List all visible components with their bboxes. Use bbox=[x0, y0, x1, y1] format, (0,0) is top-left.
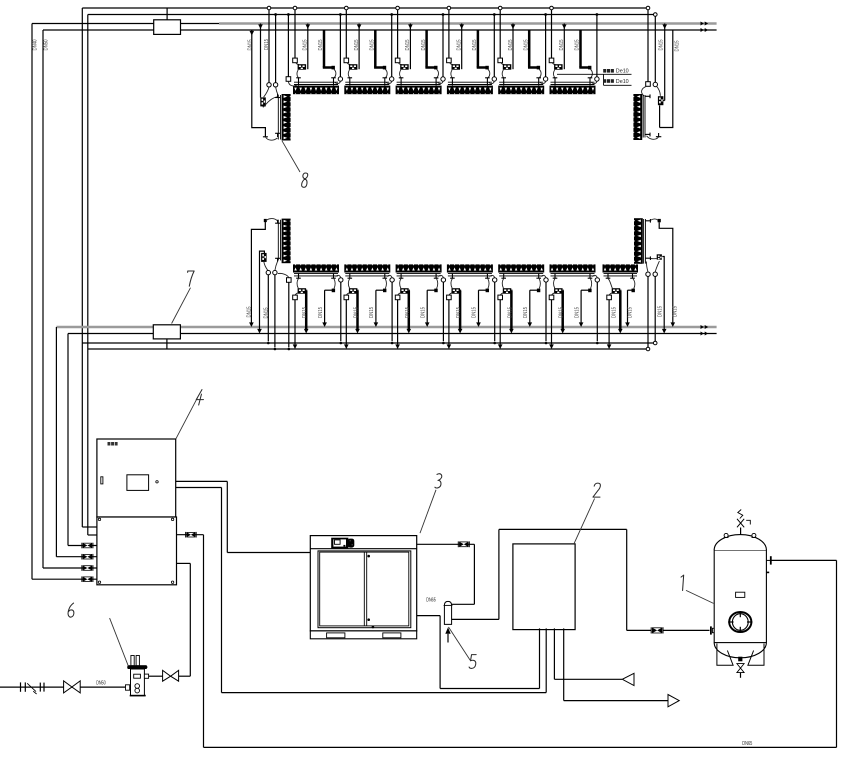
svg-text:DN15: DN15 bbox=[421, 39, 427, 50]
svg-text:DN15: DN15 bbox=[507, 307, 513, 318]
svg-text:DN15: DN15 bbox=[354, 39, 360, 50]
svg-text:DN15: DN15 bbox=[674, 40, 680, 51]
svg-text:DN50: DN50 bbox=[44, 39, 50, 50]
svg-text:DN15: DN15 bbox=[318, 307, 324, 318]
svg-text:DN15: DN15 bbox=[303, 39, 309, 50]
svg-text:DN15: DN15 bbox=[420, 307, 426, 318]
svg-text:De10: De10 bbox=[616, 79, 629, 85]
svg-text:DN15: DN15 bbox=[405, 307, 411, 318]
svg-text:De10: De10 bbox=[616, 69, 629, 75]
svg-text:DN15: DN15 bbox=[456, 307, 462, 318]
svg-text:DN15: DN15 bbox=[658, 306, 664, 317]
svg-text:DN15: DN15 bbox=[575, 39, 581, 50]
svg-text:DN15: DN15 bbox=[559, 39, 565, 50]
svg-text:DN15: DN15 bbox=[523, 39, 529, 50]
svg-text:DN15: DN15 bbox=[673, 306, 679, 317]
svg-text:DN65: DN65 bbox=[426, 597, 436, 603]
svg-text:DN15: DN15 bbox=[247, 39, 253, 50]
svg-text:DN15: DN15 bbox=[508, 39, 514, 50]
svg-text:DN15: DN15 bbox=[369, 307, 375, 318]
svg-text:DN65: DN65 bbox=[742, 741, 752, 747]
svg-text:DN15: DN15 bbox=[523, 307, 529, 318]
svg-text:DN15: DN15 bbox=[472, 307, 478, 318]
svg-text:DN15: DN15 bbox=[405, 39, 411, 50]
svg-text:DN15: DN15 bbox=[658, 39, 664, 50]
svg-text:DN15: DN15 bbox=[574, 307, 580, 318]
svg-text:DN15: DN15 bbox=[246, 306, 252, 317]
svg-text:DN50: DN50 bbox=[96, 681, 106, 687]
svg-text:DN15: DN15 bbox=[627, 307, 633, 318]
svg-text:DN15: DN15 bbox=[302, 307, 308, 318]
svg-text:DN15: DN15 bbox=[559, 307, 565, 318]
svg-text:DN15: DN15 bbox=[472, 39, 478, 50]
svg-text:DN15: DN15 bbox=[318, 39, 324, 50]
svg-text:DN40: DN40 bbox=[33, 39, 39, 50]
svg-text:DN15: DN15 bbox=[457, 39, 463, 50]
svg-text:DN15: DN15 bbox=[612, 307, 618, 318]
svg-text:DN15: DN15 bbox=[370, 39, 376, 50]
svg-text:DN15: DN15 bbox=[354, 307, 360, 318]
